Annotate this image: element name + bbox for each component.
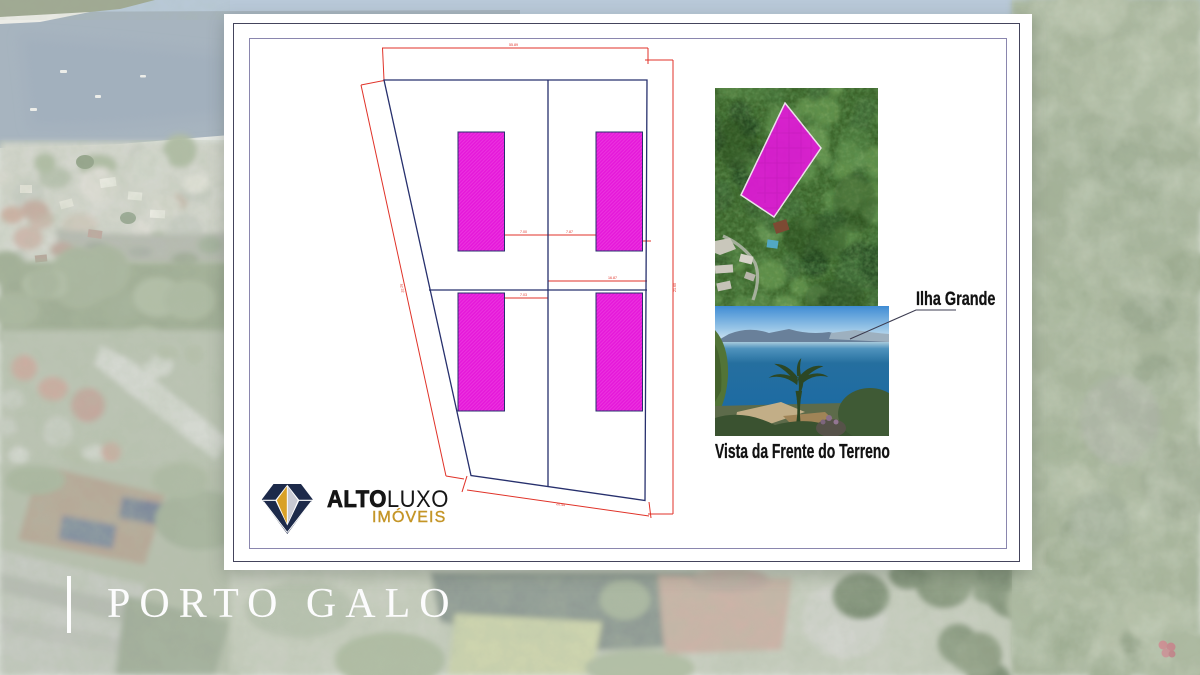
svg-text:7.87: 7.87	[566, 230, 573, 234]
svg-text:42.32: 42.32	[399, 283, 405, 293]
svg-text:16.87: 16.87	[608, 276, 617, 280]
svg-text:21.60: 21.60	[673, 283, 677, 292]
svg-text:7.03: 7.03	[520, 293, 527, 297]
svg-text:20.44: 20.44	[556, 502, 565, 507]
svg-text:7.00: 7.00	[520, 230, 527, 234]
svg-text:55.89: 55.89	[509, 43, 518, 47]
